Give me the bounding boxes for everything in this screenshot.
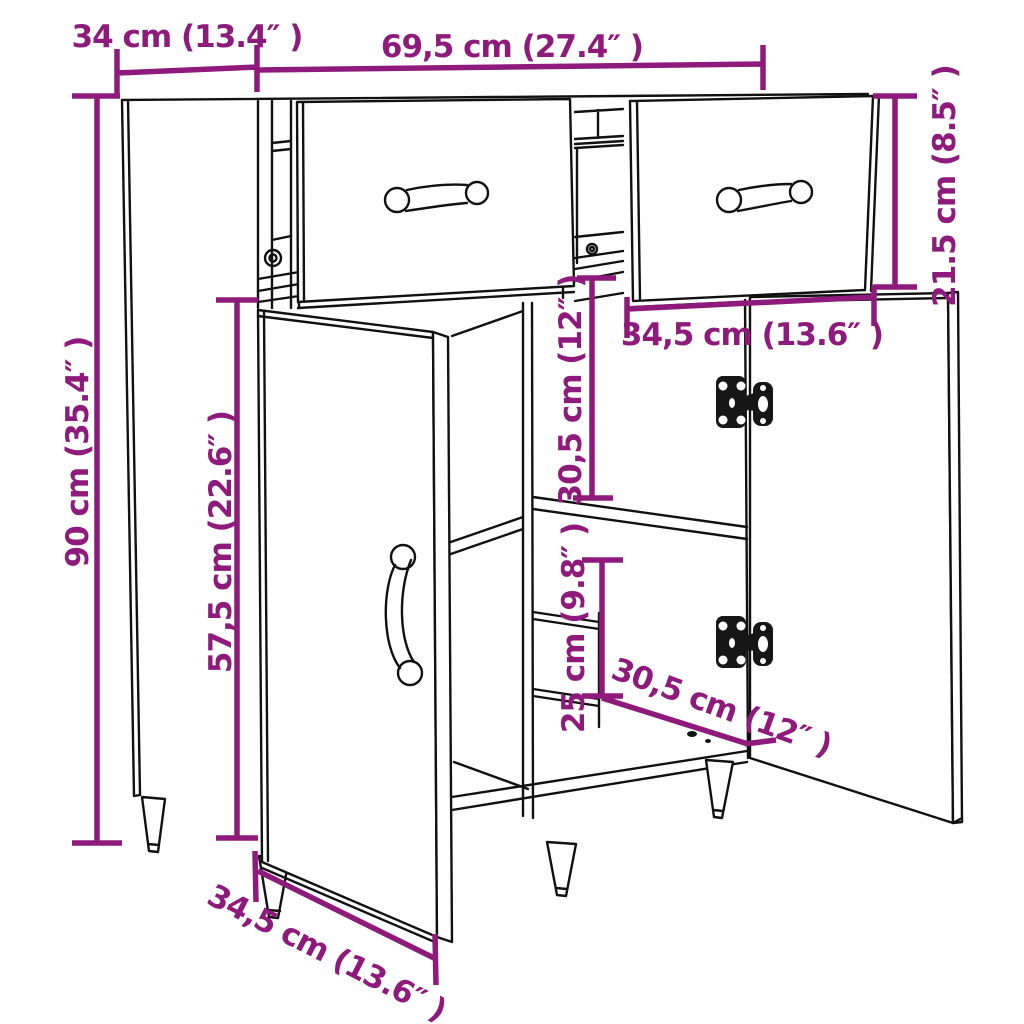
cabinet-line-art: [122, 94, 962, 943]
left-drawer: [297, 99, 574, 308]
dim-depth-top-label: 34 cm (13.4″ ): [72, 19, 303, 55]
dim-height-door-label: 57,5 cm (22.6″ ): [203, 411, 239, 673]
left-door-edge: [433, 332, 452, 942]
bottom-panel: [452, 751, 747, 810]
dim-width-total-label: 69,5 cm (27.4″ ): [381, 29, 643, 65]
shelves: [445, 497, 747, 556]
middle-divider-panel: [523, 303, 533, 818]
dimension-diagram: 34 cm (13.4″ ) 69,5 cm (27.4″ ) 21.5 cm …: [0, 0, 1024, 1024]
leg-center-front: [547, 842, 576, 896]
left-door: [258, 310, 452, 943]
left-compartment-shelf: [445, 517, 523, 556]
screw-hole-icon: [705, 739, 711, 743]
dim-height-shelf-upper-label: 30,5 cm (12″ ): [553, 275, 589, 506]
right-drawer-front: [630, 96, 873, 301]
dim-height-total-label: 90 cm (35.4″ ): [60, 337, 96, 568]
screw-hole-icon: [687, 731, 697, 737]
hinge-upper: [716, 376, 773, 428]
hinge-lower: [716, 616, 773, 668]
leg-left-rear: [142, 797, 165, 852]
dim-width-drawer-label: 34,5 cm (13.6″ ): [621, 317, 883, 353]
left-drawer-rails: [258, 141, 299, 302]
leg-right-front: [706, 760, 733, 818]
left-door-face: [258, 310, 437, 937]
dim-height-drawer-label: 21.5 cm (8.5″ ): [927, 65, 963, 307]
right-drawer: [630, 96, 873, 307]
center-rail-screw-center: [590, 247, 594, 251]
opening-top-edge: [452, 311, 523, 336]
dim-height-drawer-lines: [873, 96, 917, 287]
cabinet-left-side-panel: [122, 100, 140, 796]
left-drawer-front: [297, 99, 574, 302]
center-rail-screw: [587, 244, 597, 254]
dim-height-shelf-lower-label: 25 cm (9.8″ ): [556, 523, 592, 733]
product-dimension-image: 34 cm (13.4″ ) 69,5 cm (27.4″ ) 21.5 cm …: [0, 0, 1024, 1024]
